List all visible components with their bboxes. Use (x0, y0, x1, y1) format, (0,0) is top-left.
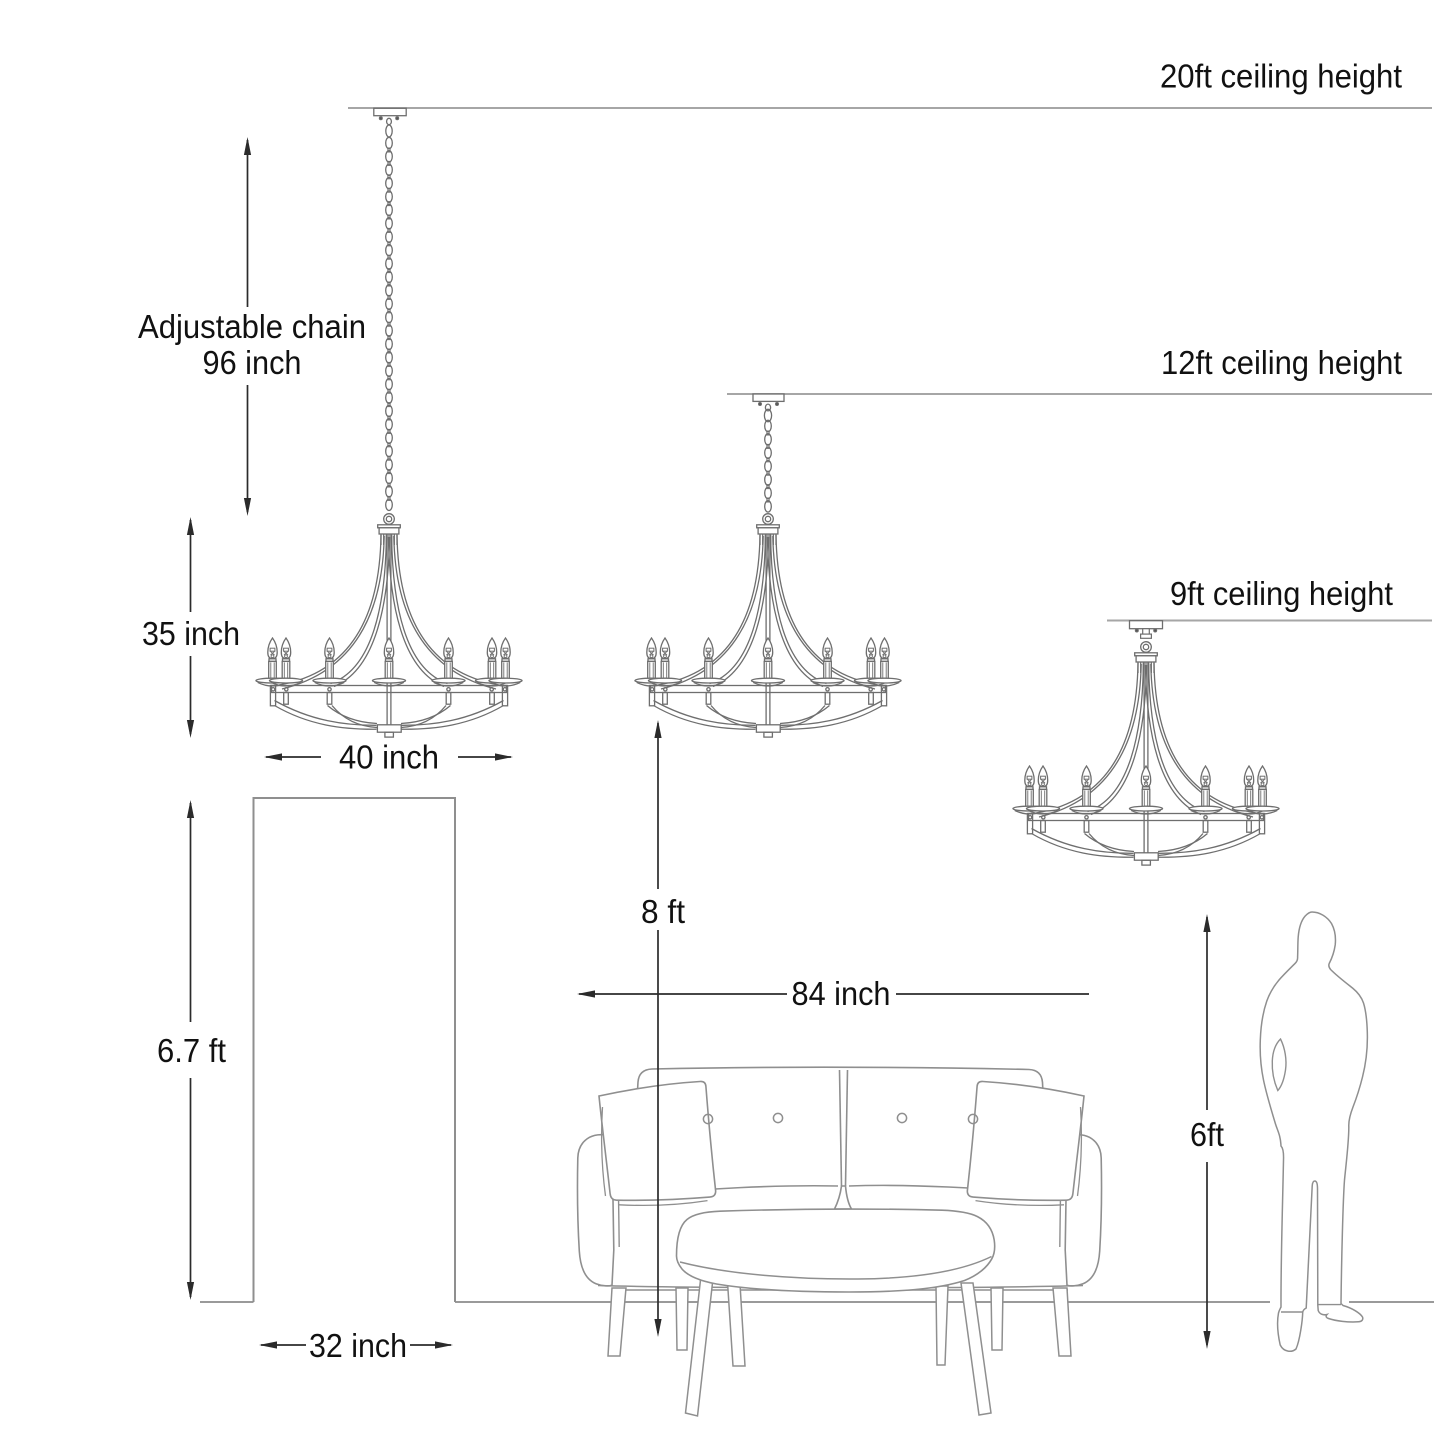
svg-text:12ft ceiling height: 12ft ceiling height (1161, 344, 1402, 381)
svg-text:35 inch: 35 inch (142, 615, 240, 652)
svg-text:84 inch: 84 inch (792, 975, 891, 1012)
svg-text:6.7 ft: 6.7 ft (157, 1032, 226, 1069)
svg-text:8 ft: 8 ft (641, 893, 685, 930)
svg-text:9ft ceiling height: 9ft ceiling height (1170, 575, 1393, 612)
svg-text:20ft ceiling height: 20ft ceiling height (1160, 58, 1402, 95)
svg-text:6ft: 6ft (1190, 1116, 1224, 1153)
svg-text:40 inch: 40 inch (339, 739, 439, 776)
svg-text:32 inch: 32 inch (309, 1327, 407, 1364)
svg-text:Adjustable chain: Adjustable chain (138, 308, 366, 345)
svg-text:96 inch: 96 inch (203, 344, 302, 381)
